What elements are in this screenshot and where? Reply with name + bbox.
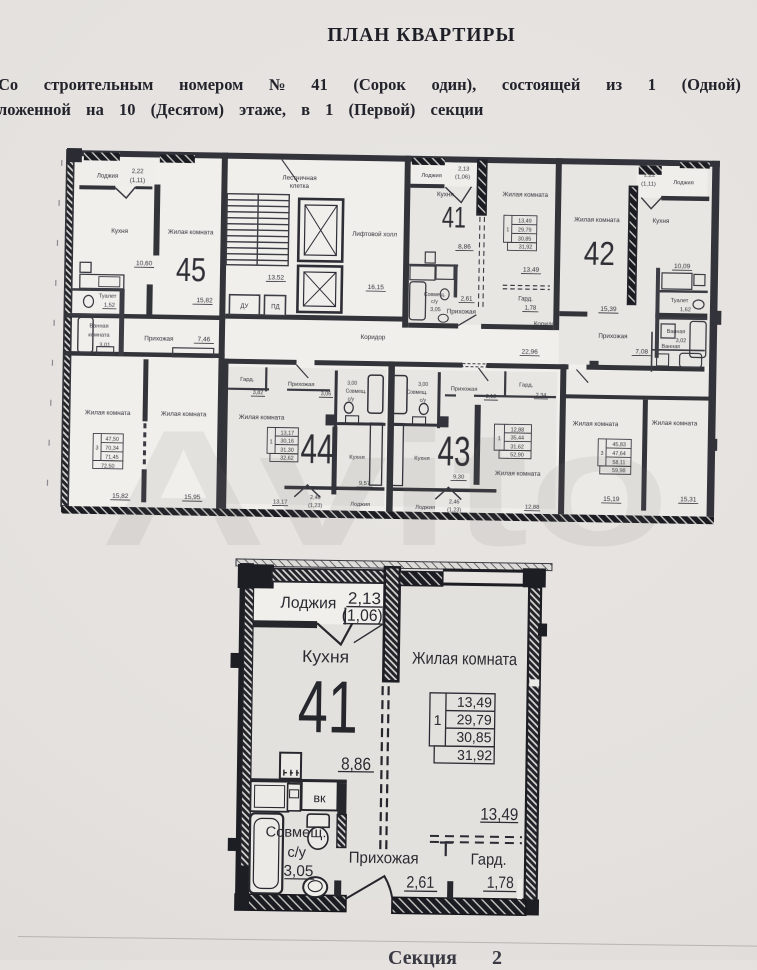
svg-text:22,96: 22,96 <box>522 349 539 356</box>
svg-text:Гард.: Гард. <box>518 297 533 303</box>
svg-text:3,05: 3,05 <box>430 307 441 313</box>
svg-text:с/у: с/у <box>431 299 438 305</box>
svg-text:15,31: 15,31 <box>680 496 697 503</box>
svg-text:3,00: 3,00 <box>347 381 357 387</box>
svg-text:13,49: 13,49 <box>523 267 540 274</box>
svg-text:41: 41 <box>297 665 358 749</box>
svg-text:Ванная: Ванная <box>667 329 686 335</box>
svg-text:1,78: 1,78 <box>525 306 537 312</box>
svg-text:31,92: 31,92 <box>457 747 492 764</box>
svg-text:2,22: 2,22 <box>132 169 144 175</box>
svg-text:Коридор: Коридор <box>360 334 385 341</box>
svg-text:(1,06): (1,06) <box>342 607 383 626</box>
svg-text:7,46: 7,46 <box>197 336 210 343</box>
svg-text:29,79: 29,79 <box>518 227 532 233</box>
svg-text:42: 42 <box>584 235 616 273</box>
svg-text:8,86: 8,86 <box>458 243 471 250</box>
svg-text:Прихожая: Прихожая <box>451 386 478 392</box>
svg-text:Лестничная: Лестничная <box>282 175 316 183</box>
svg-text:Жилая комната: Жилая комната <box>503 191 549 199</box>
svg-text:Прихожая: Прихожая <box>349 850 419 868</box>
svg-text:3,00: 3,00 <box>418 382 428 388</box>
svg-text:Кухня: Кухня <box>302 647 349 667</box>
svg-text:1,78: 1,78 <box>487 874 514 892</box>
svg-text:10,09: 10,09 <box>674 263 691 270</box>
svg-text:15,39: 15,39 <box>600 306 617 313</box>
svg-text:Совмещ.: Совмещ. <box>424 292 446 298</box>
svg-text:Avito: Avito <box>100 396 670 580</box>
svg-text:3,01: 3,01 <box>99 343 110 349</box>
svg-text:1,52: 1,52 <box>104 303 115 309</box>
svg-text:Прихожая: Прихожая <box>447 308 476 315</box>
svg-text:Прихожая: Прихожая <box>144 335 173 342</box>
svg-text:13,52: 13,52 <box>268 274 285 281</box>
svg-text:ПД: ПД <box>271 304 279 310</box>
svg-text:Лоджия: Лоджия <box>421 173 442 179</box>
svg-text:2,61: 2,61 <box>406 874 434 892</box>
svg-text:Туалет: Туалет <box>99 294 117 300</box>
svg-text:Гард.: Гард. <box>470 851 506 869</box>
svg-text:Туалет: Туалет <box>671 298 689 304</box>
svg-text:2,13: 2,13 <box>458 166 469 172</box>
svg-text:1,62: 1,62 <box>680 307 691 313</box>
svg-text:8,86: 8,86 <box>341 754 371 774</box>
svg-text:13,49: 13,49 <box>480 805 518 825</box>
svg-text:2,13: 2,13 <box>348 590 381 608</box>
svg-text:45: 45 <box>176 251 207 288</box>
svg-text:16,15: 16,15 <box>368 284 385 291</box>
svg-text:(1,06): (1,06) <box>455 174 470 180</box>
svg-text:7,08: 7,08 <box>635 348 648 355</box>
svg-text:клетка: клетка <box>290 183 310 190</box>
svg-text:Кухня: Кухня <box>652 218 669 225</box>
svg-text:Гард.: Гард. <box>519 383 534 389</box>
svg-text:Лифтовой холл: Лифтовой холл <box>352 230 397 239</box>
svg-text:15,82: 15,82 <box>196 297 213 304</box>
svg-text:41: 41 <box>442 201 467 234</box>
svg-text:31,92: 31,92 <box>519 245 533 251</box>
svg-text:1: 1 <box>434 712 442 728</box>
svg-text:вк: вк <box>313 791 326 805</box>
svg-text:Жилая комната: Жилая комната <box>168 229 214 237</box>
svg-text:Лоджия: Лоджия <box>280 595 336 613</box>
svg-text:10,60: 10,60 <box>136 260 153 267</box>
svg-text:Совмещ.: Совмещ. <box>346 389 367 395</box>
svg-text:Гард.: Гард. <box>240 377 255 383</box>
svg-text:Лоджия: Лоджия <box>97 174 118 180</box>
svg-text:Кухня: Кухня <box>111 228 128 235</box>
svg-text:13,49: 13,49 <box>457 694 492 711</box>
svg-text:Прихожая: Прихожая <box>288 382 315 388</box>
svg-text:с/у: с/у <box>287 845 307 861</box>
svg-text:Совмещ.: Совмещ. <box>265 824 326 841</box>
svg-text:(1,11): (1,11) <box>641 182 656 188</box>
svg-text:30,85: 30,85 <box>518 236 532 242</box>
svg-text:Кухня: Кухня <box>437 191 454 198</box>
svg-text:1: 1 <box>506 227 509 233</box>
svg-text:Ванная: Ванная <box>89 323 108 329</box>
svg-text:3,05: 3,05 <box>283 863 313 880</box>
svg-text:Лоджия: Лоджия <box>673 180 694 186</box>
svg-text:3: 3 <box>96 446 99 452</box>
svg-text:Жилая комната: Жилая комната <box>412 649 518 670</box>
svg-text:Коридор: Коридор <box>534 321 559 328</box>
svg-text:ДУ: ДУ <box>240 304 248 310</box>
svg-text:комната: комната <box>88 332 110 338</box>
svg-text:13,49: 13,49 <box>518 218 532 224</box>
svg-text:(1,11): (1,11) <box>130 178 145 184</box>
svg-text:2,61: 2,61 <box>461 297 473 303</box>
svg-text:29,79: 29,79 <box>457 711 492 728</box>
svg-text:Жилая комната: Жилая комната <box>574 216 620 224</box>
svg-text:Прихожая: Прихожая <box>598 333 627 340</box>
svg-text:30,85: 30,85 <box>456 729 491 746</box>
